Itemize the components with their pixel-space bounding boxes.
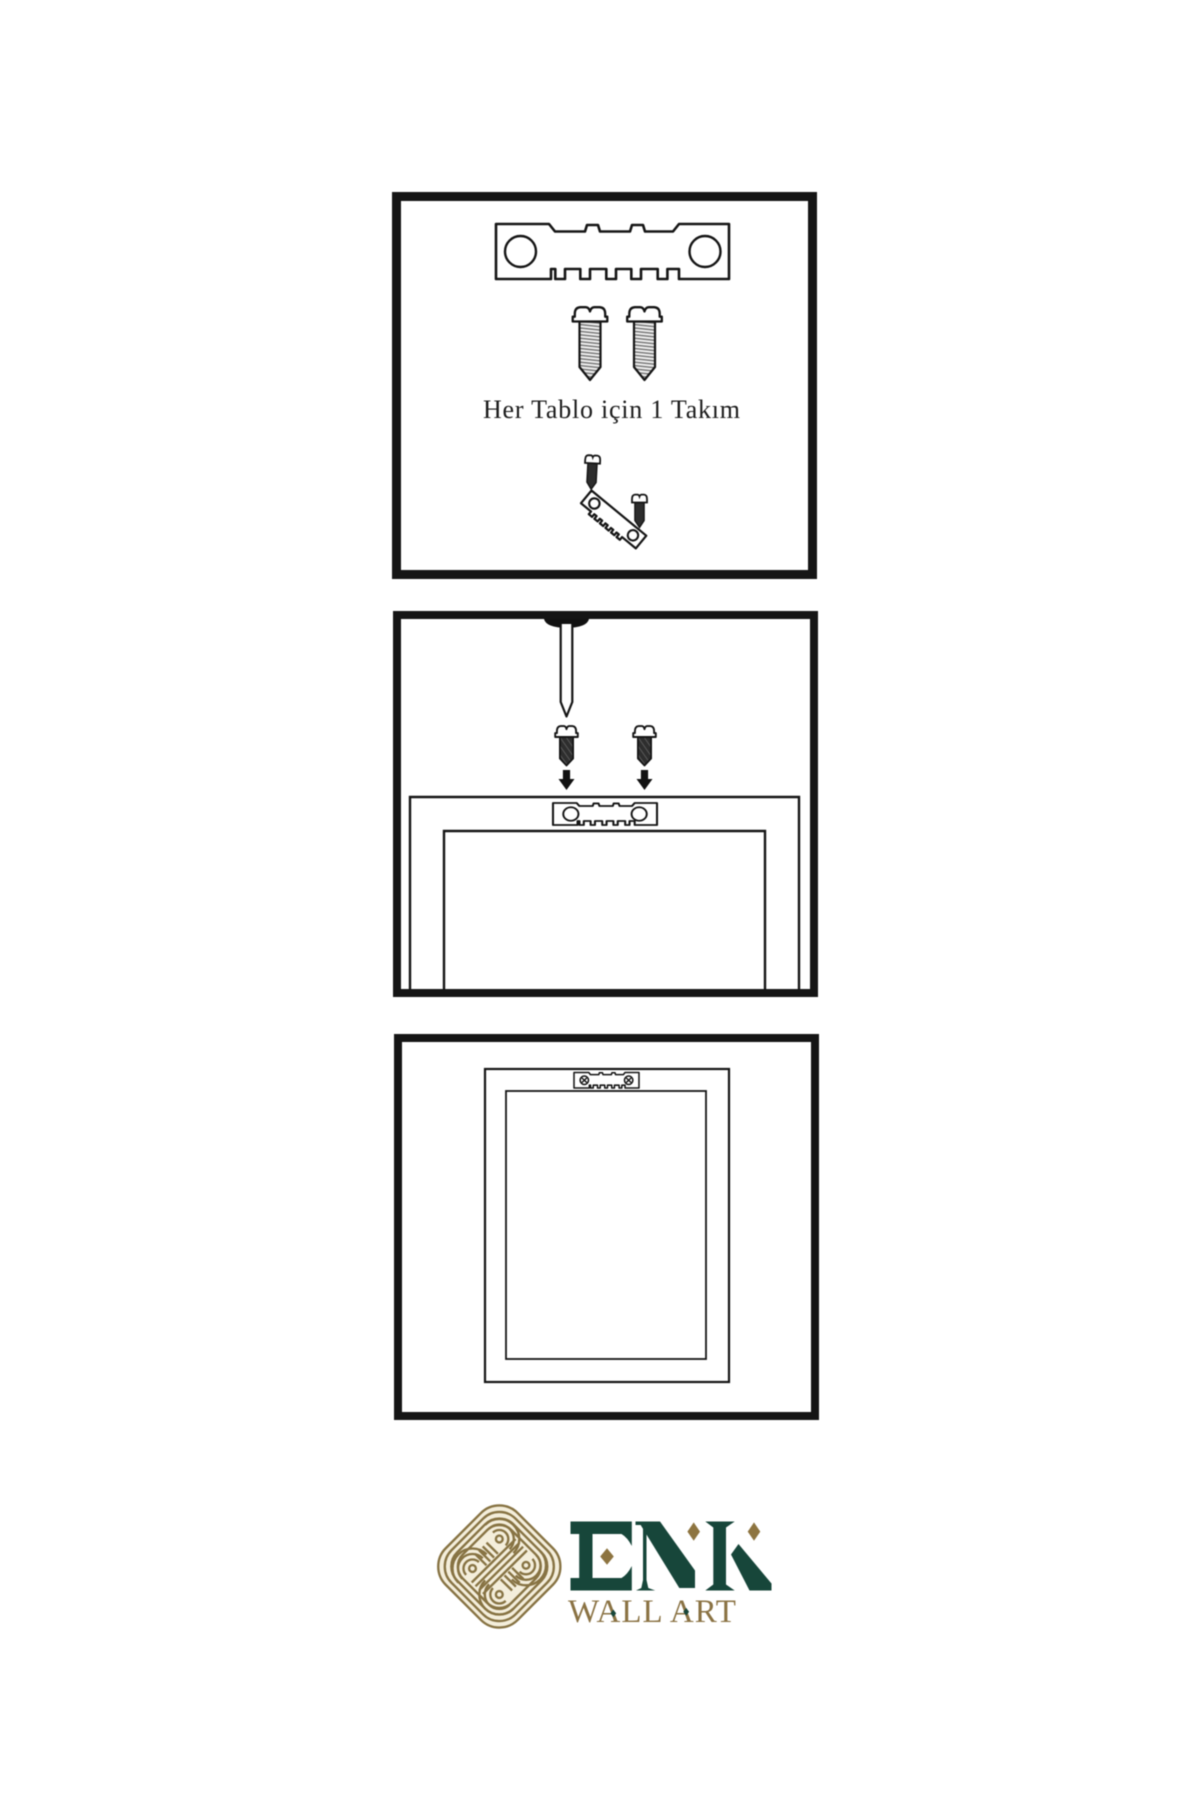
svg-text:WALL ART: WALL ART <box>568 1594 737 1630</box>
svg-text:Her Tablo için 1 Takım: Her Tablo için 1 Takım <box>483 395 740 424</box>
